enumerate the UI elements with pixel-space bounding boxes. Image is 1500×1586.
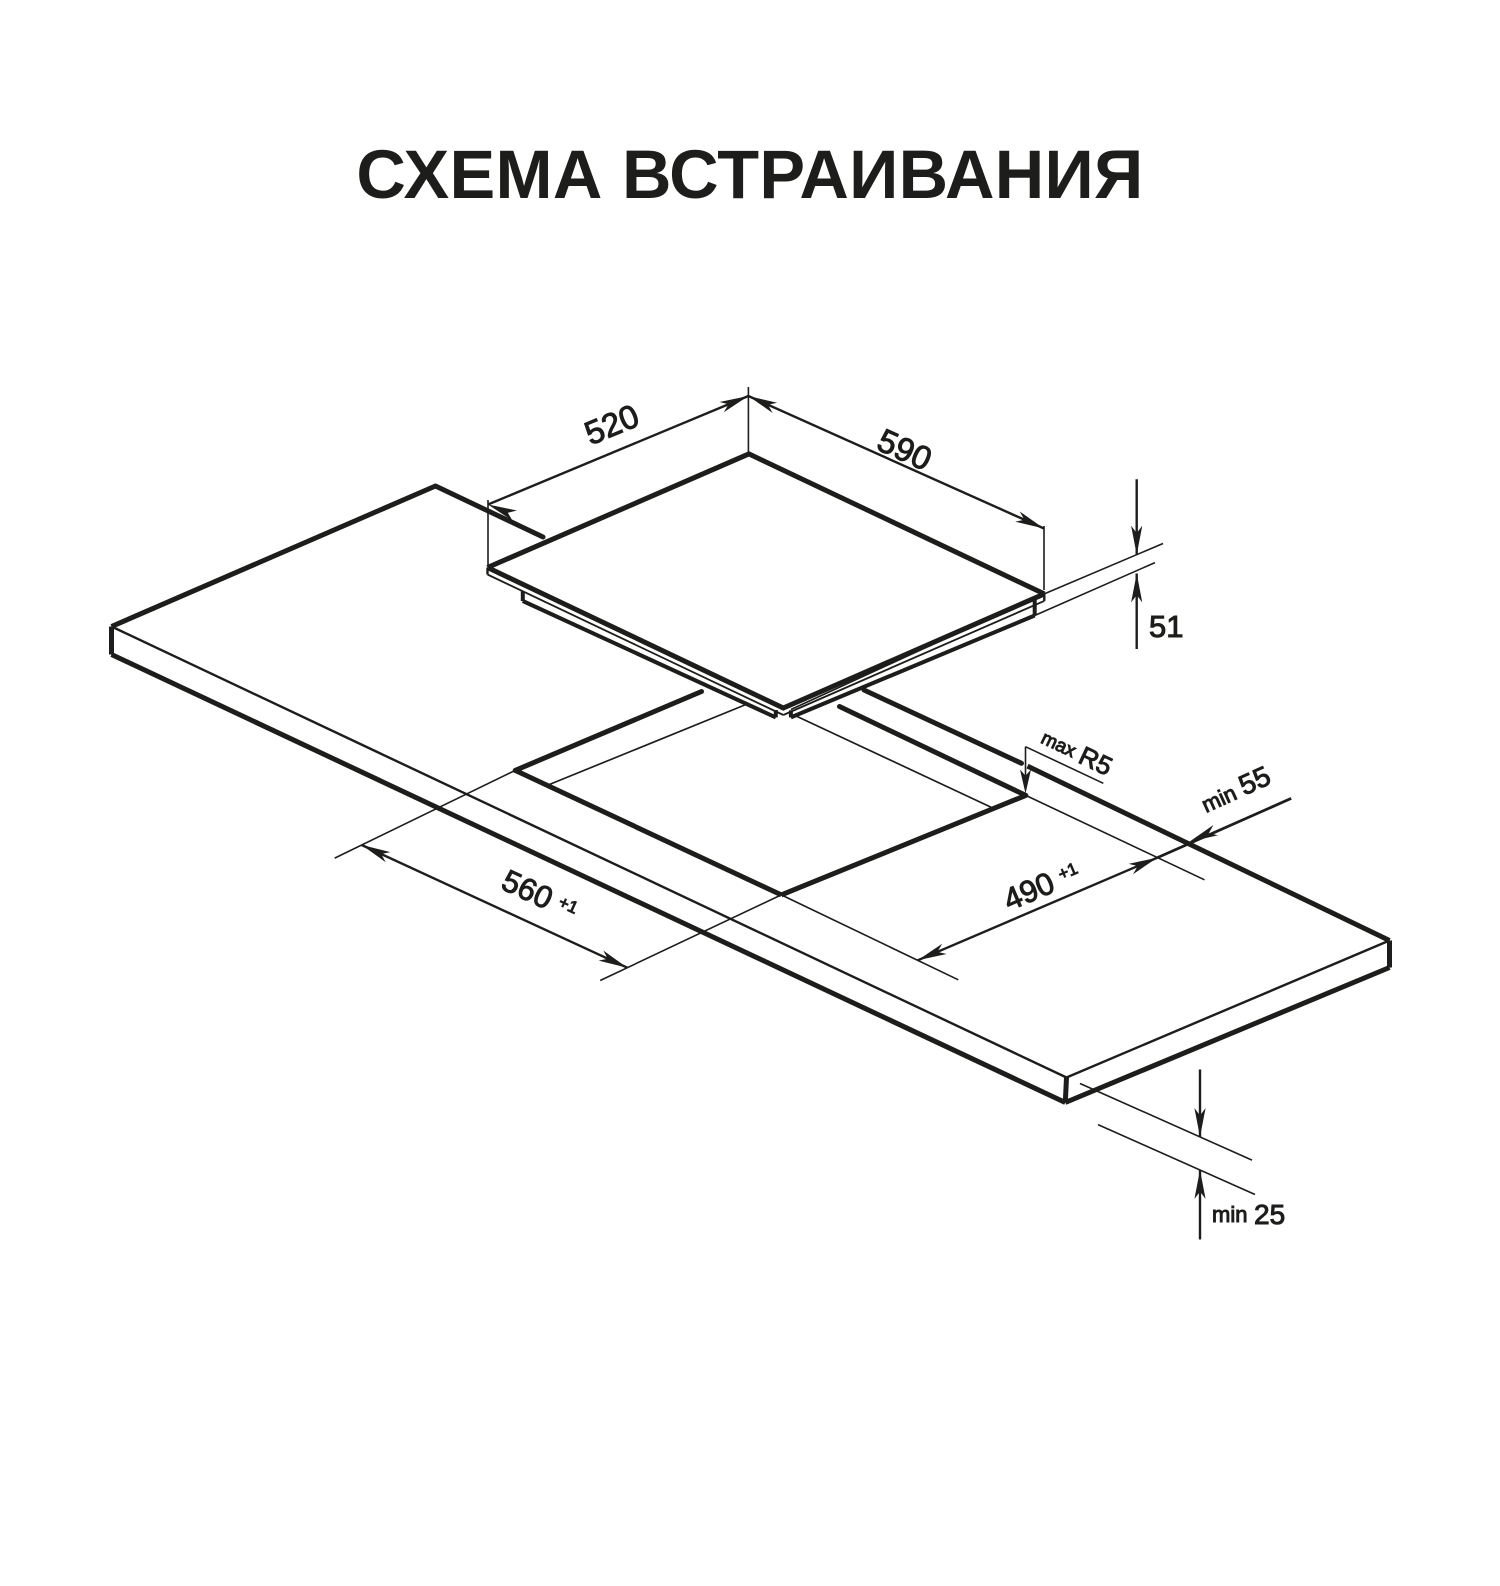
svg-text:55: 55: [1234, 760, 1275, 801]
svg-text:+1: +1: [556, 892, 582, 917]
svg-text:51: 51: [1149, 609, 1183, 644]
svg-text:560: 560: [497, 863, 559, 916]
svg-text:R5: R5: [1074, 740, 1117, 781]
svg-text:+1: +1: [1055, 859, 1080, 884]
svg-text:490: 490: [998, 865, 1059, 918]
svg-text:25: 25: [1254, 1199, 1285, 1230]
svg-text:590: 590: [872, 421, 937, 477]
svg-text:max: max: [1038, 728, 1080, 762]
svg-text:min: min: [1198, 780, 1241, 817]
svg-text:min: min: [1212, 1202, 1247, 1227]
